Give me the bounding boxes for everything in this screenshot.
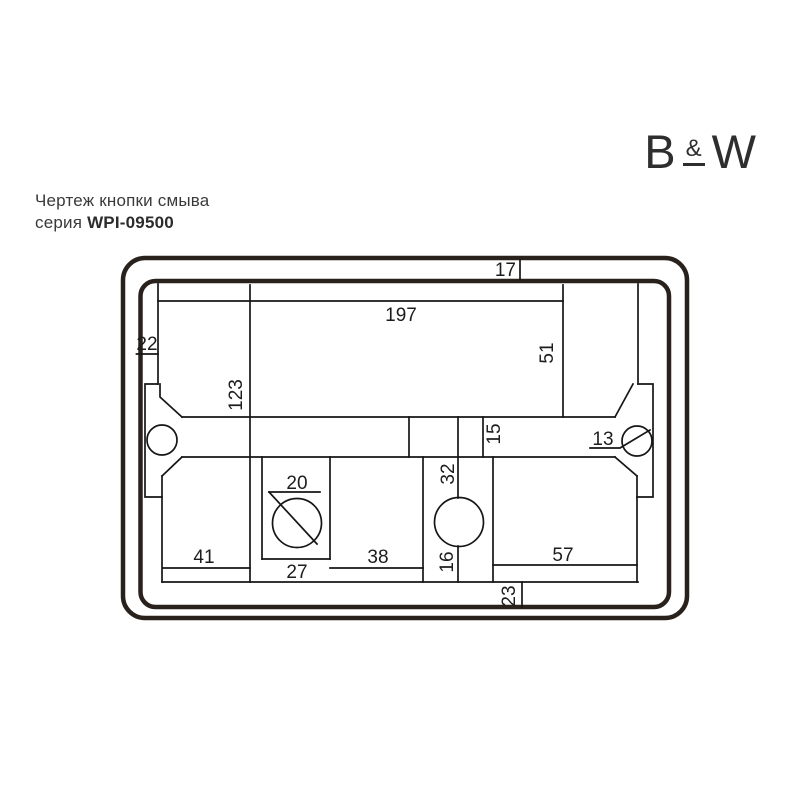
dim-button-hole-dia: 20	[286, 473, 307, 494]
technical-drawing: 17 197 22 51 123 15 13 20 32 16 41 27 38…	[0, 0, 800, 800]
right-tab-upper-chamfer	[615, 384, 633, 417]
left-mount-hole	[147, 425, 177, 455]
dim-center-width: 32	[438, 463, 459, 484]
dim-left-cell-width: 41	[193, 547, 214, 568]
dim-plate-height: 123	[226, 379, 247, 411]
dim-cell-gap: 38	[367, 547, 388, 568]
dim-button-cell-width: 27	[286, 562, 307, 583]
right-mount-hole	[622, 426, 652, 456]
drawing-page: Чертеж кнопки смыва серия WPI-09500 B & …	[0, 0, 800, 800]
center-button-hole	[435, 498, 484, 547]
right-tab-outline	[637, 384, 653, 497]
inner-frame	[141, 281, 670, 607]
right-tab-lower-chamfer	[615, 457, 637, 476]
dim-frame-top-offset: 17	[495, 260, 516, 281]
left-tab-lower-chamfer	[162, 457, 182, 476]
dim-bottom-offset: 23	[499, 585, 520, 606]
dim-right-cell-width: 57	[552, 545, 573, 566]
dim-bar-segment: 15	[484, 423, 505, 444]
dim-mount-hole-dia: 13	[592, 429, 613, 450]
dim-top-to-bar: 51	[537, 342, 558, 363]
dimension-labels: 17 197 22 51 123 15 13 20 32 16 41 27 38…	[136, 260, 613, 607]
dim-plate-width: 197	[385, 305, 417, 326]
dim-frame-left-offset: 22	[136, 334, 157, 355]
dim-center-half-width: 16	[437, 551, 458, 572]
left-tab-upper-chamfer	[160, 384, 182, 417]
